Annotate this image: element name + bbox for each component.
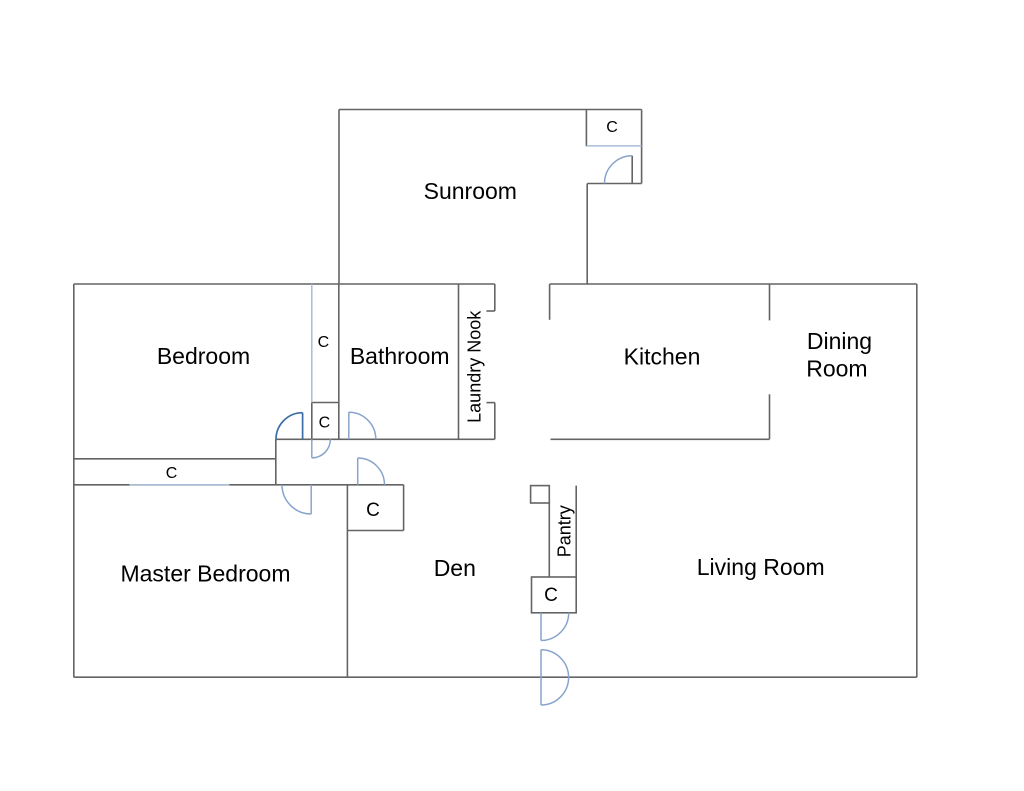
- svg-text:Den: Den: [434, 555, 476, 581]
- svg-text:Room: Room: [806, 355, 867, 381]
- svg-text:Pantry: Pantry: [555, 505, 575, 557]
- svg-text:C: C: [544, 585, 558, 606]
- svg-text:C: C: [318, 334, 330, 351]
- svg-text:Laundry Nook: Laundry Nook: [465, 310, 485, 423]
- svg-text:Master Bedroom: Master Bedroom: [120, 561, 290, 587]
- svg-text:Sunroom: Sunroom: [424, 178, 517, 204]
- svg-text:Bathroom: Bathroom: [350, 343, 450, 369]
- svg-text:Living Room: Living Room: [697, 554, 825, 580]
- svg-text:C: C: [366, 500, 380, 521]
- svg-text:Bedroom: Bedroom: [157, 343, 250, 369]
- svg-text:C: C: [319, 414, 331, 431]
- svg-text:C: C: [606, 119, 618, 136]
- svg-text:Dining: Dining: [807, 328, 872, 354]
- svg-text:Kitchen: Kitchen: [624, 344, 701, 370]
- svg-text:C: C: [166, 465, 178, 482]
